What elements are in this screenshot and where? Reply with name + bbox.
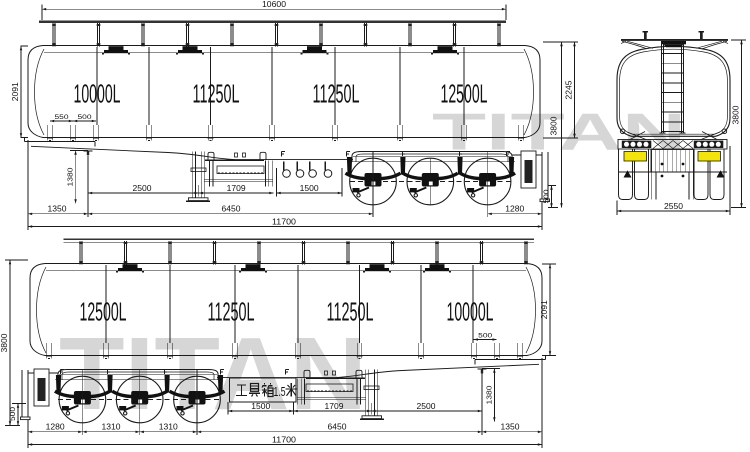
- svg-text:500: 500: [542, 190, 551, 204]
- svg-text:2500: 2500: [417, 402, 436, 411]
- svg-text:2091: 2091: [11, 82, 20, 101]
- svg-text:11250L: 11250L: [208, 297, 255, 327]
- svg-text:550: 550: [55, 114, 69, 121]
- svg-text:11250L: 11250L: [193, 79, 240, 109]
- svg-text:1.5: 1.5: [274, 385, 286, 399]
- svg-text:11700: 11700: [272, 435, 296, 444]
- svg-text:1310: 1310: [102, 423, 121, 432]
- svg-text:1280: 1280: [505, 205, 524, 214]
- svg-text:2500: 2500: [133, 184, 152, 193]
- svg-text:1709: 1709: [325, 402, 344, 411]
- svg-text:2091: 2091: [540, 300, 549, 319]
- svg-text:500: 500: [8, 407, 17, 421]
- svg-text:1500: 1500: [300, 184, 319, 193]
- svg-text:TITAN: TITAN: [432, 104, 686, 162]
- svg-text:1380: 1380: [484, 386, 493, 405]
- svg-text:10600: 10600: [262, 0, 286, 9]
- svg-text:500: 500: [78, 114, 92, 121]
- svg-text:1709: 1709: [227, 184, 246, 193]
- svg-text:1350: 1350: [501, 423, 520, 432]
- svg-text:500: 500: [478, 332, 492, 339]
- svg-text:10000L: 10000L: [74, 79, 121, 109]
- svg-text:2245: 2245: [564, 80, 573, 99]
- svg-text:1380: 1380: [66, 168, 75, 187]
- svg-text:3800: 3800: [550, 116, 559, 135]
- svg-text:10000L: 10000L: [447, 297, 494, 327]
- svg-text:6450: 6450: [328, 423, 347, 432]
- svg-text:11700: 11700: [272, 217, 296, 226]
- svg-text:12500L: 12500L: [80, 297, 127, 327]
- svg-text:1280: 1280: [46, 423, 65, 432]
- svg-text:6450: 6450: [222, 205, 241, 214]
- svg-text:11250L: 11250L: [313, 79, 360, 109]
- svg-text:2550: 2550: [664, 202, 683, 211]
- svg-text:3800: 3800: [732, 105, 741, 124]
- svg-text:3800: 3800: [0, 333, 9, 352]
- svg-text:1310: 1310: [159, 423, 178, 432]
- svg-text:11250L: 11250L: [327, 297, 374, 327]
- svg-text:1350: 1350: [48, 205, 67, 214]
- svg-text:1500: 1500: [251, 402, 270, 411]
- svg-text:12500L: 12500L: [441, 79, 488, 109]
